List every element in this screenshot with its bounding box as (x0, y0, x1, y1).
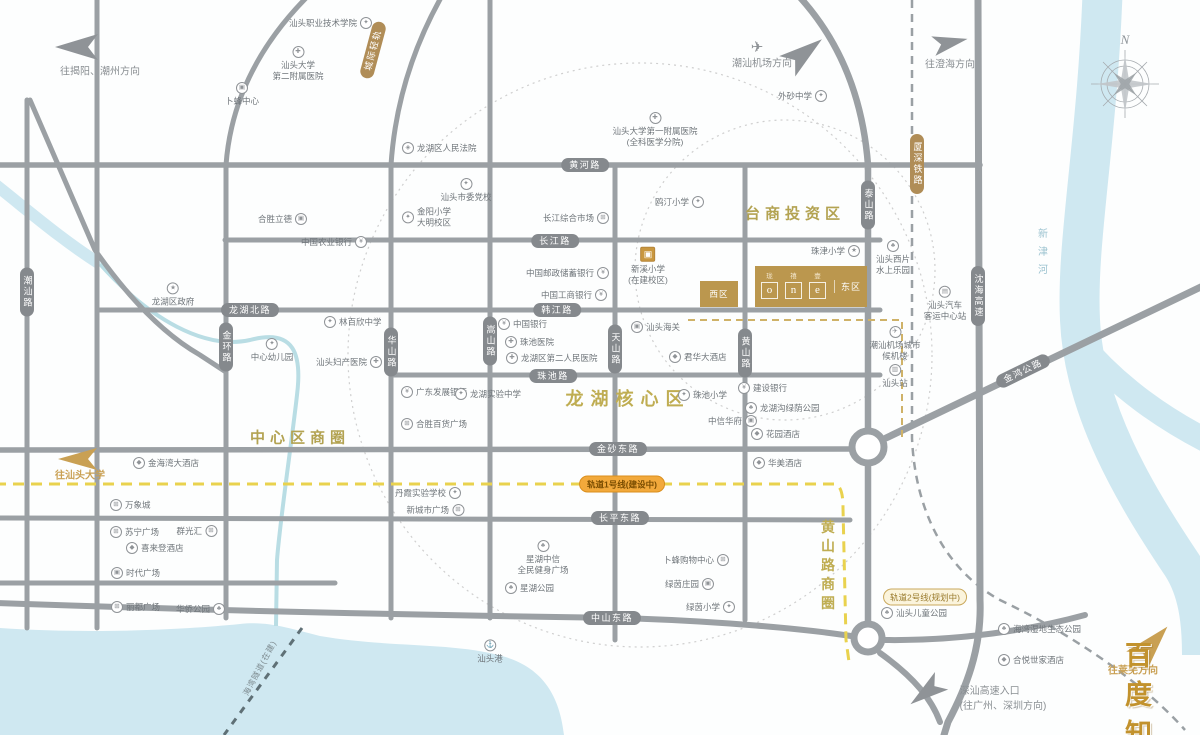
poi-building: ▣合胜立德 (258, 213, 307, 225)
poi-park: ♣华侨公园 (176, 603, 225, 615)
poi-label: 合胜立德 (258, 214, 292, 225)
poi-bus: ▤汕头汽车 客运中心站 (924, 286, 967, 321)
area-label-longhu-core: 龙湖核心区 (566, 385, 691, 411)
arrow-jieyang-icon (55, 34, 98, 60)
location-map: 西区 珑o禧n壹e东区 黄河路长江路龙湖北路韩江路珠池路金砂东路长平东路中山东路… (0, 0, 1200, 735)
compass-north-label: N (1121, 32, 1130, 48)
project-east-label: 东区 (834, 280, 861, 293)
project-brand-char: 珑 (766, 274, 773, 281)
building-icon: ▣ (295, 213, 307, 225)
plane-icon: ✈ (889, 326, 901, 338)
hotel-icon: ◆ (126, 542, 138, 554)
direction-airport: 潮汕机场方向 (732, 55, 792, 70)
poi-park: ♣海湾湿地生态公园 (998, 623, 1081, 635)
road-label-jinhuan: 金环路 (219, 323, 233, 372)
poi-train: ▥汕头站 (882, 364, 908, 389)
school-icon: ✦ (449, 487, 461, 499)
road-label-changjiang: 长江路 (531, 234, 579, 248)
poi-label: 花园酒店 (766, 429, 800, 440)
poi-hospital: ✚汕头大学第一附属医院 (全科医学分院) (612, 112, 697, 147)
rail-label-xiashen: 厦深铁路 (910, 134, 924, 194)
poi-label: 合悦世家酒店 (1013, 655, 1064, 666)
poi-label: 合胜百货广场 (416, 419, 467, 430)
poi-star: ★龙湖区政府 (152, 282, 195, 307)
star-icon: ★ (848, 245, 860, 257)
poi-building: ▣绿茵庄园 (665, 578, 714, 590)
road-label-chaoshan: 潮汕路 (20, 268, 34, 317)
poi-school: ✦中心幼儿园 (251, 338, 294, 363)
poi-label: 汕头西片 水上乐园 (876, 254, 910, 275)
road-label-huangshan: 黄山路 (738, 329, 752, 378)
poi-label: 中心幼儿园 (251, 352, 294, 363)
poi-bank: ¥建设银行 (738, 382, 787, 394)
poi-market: ⊞万象城 (110, 499, 151, 511)
poi-school: ✦汕头职业技术学院 (289, 17, 372, 29)
poi-label: 林百欣中学 (339, 317, 382, 328)
bank-icon: ¥ (498, 318, 510, 330)
poi-label: 潮汕机场城市 候机楼 (869, 340, 920, 361)
poi-label: 万象城 (125, 500, 151, 511)
poi-market: ⊞长江综合市场 (543, 212, 609, 224)
hospital-icon: ✚ (292, 46, 304, 58)
school-icon: ✦ (402, 211, 414, 223)
poi-label: 星湖公园 (520, 583, 554, 594)
poi-label: 外砂中学 (778, 91, 812, 102)
star-icon: ★ (167, 282, 179, 294)
poi-building: ▣卜蜂中心 (225, 82, 259, 107)
poi-bank: ¥中国工商银行 (541, 289, 607, 301)
poi-label: 汕头市委党校 (440, 192, 491, 203)
poi-label: 群光汇 (176, 526, 202, 537)
poi-label: 金阳小学 大明校区 (417, 206, 451, 227)
poi-label: 中国银行 (513, 319, 547, 330)
poi-label: 华侨公园 (176, 604, 210, 615)
poi-bank: ¥中国农业银行 (301, 236, 367, 248)
bank-icon: ¥ (738, 382, 750, 394)
poi-label: 建设银行 (753, 383, 787, 394)
hospital-icon: ✚ (506, 352, 518, 364)
poi-market: ⊞合胜百货广场 (401, 418, 467, 430)
project-brand-cell: 壹e (809, 274, 826, 299)
poi-label: 君华大酒店 (684, 352, 727, 363)
road-label-longhubei: 龙湖北路 (221, 303, 279, 317)
poi-school: ✦龙湖实验中学 (455, 388, 521, 400)
area-label-center-cbd: 中心区商圈 (250, 427, 350, 448)
poi-school: ✦外砂中学 (778, 90, 827, 102)
building-icon: ▣ (631, 321, 643, 333)
train-icon: ▥ (889, 364, 901, 376)
park-icon: ♣ (881, 607, 893, 619)
area-label-huangshan-cbd: 黄山路商圈 (818, 520, 838, 615)
poi-park: ♣星湖公园 (505, 582, 554, 594)
poi-label: 汕头海关 (646, 322, 680, 333)
school-icon: ✦ (266, 338, 278, 350)
hotel-icon: ◆ (751, 428, 763, 440)
project-brand-letter: e (809, 282, 826, 299)
poi-park: ♣龙湖沟绿荫公园 (745, 402, 820, 414)
project-brand-char: 禧 (790, 274, 797, 281)
poi-label: 中国邮政储蓄银行 (526, 268, 594, 279)
poi-label: 喜来登酒店 (141, 543, 184, 554)
poi-school: ✦丹霞实验学校 (395, 487, 461, 499)
poi-star: ★珠津小学 (811, 245, 860, 257)
poi-bank: ¥中国邮政储蓄银行 (526, 267, 609, 279)
project-west-label: 西区 (709, 288, 728, 300)
poi-label: 长江综合市场 (543, 213, 594, 224)
poi-market: ⊞群光汇 (176, 525, 217, 537)
poi-label: 汕头职业技术学院 (289, 18, 357, 29)
poi-school: ✦金阳小学 大明校区 (402, 206, 451, 227)
poi-park: ♣星湖中信 全民健身广场 (517, 540, 568, 575)
building-icon: ▣ (111, 567, 123, 579)
poi-hotel: ◆喜来登酒店 (126, 542, 184, 554)
school-icon: ✦ (723, 601, 735, 613)
hotel-icon: ◆ (133, 457, 145, 469)
poi-label: 汕头港 (477, 653, 503, 664)
poi-label: 龙湖区第二人民医院 (521, 353, 598, 364)
road-label-hanjiang: 韩江路 (533, 303, 581, 317)
airplane-icon: ✈ (751, 38, 764, 56)
poi-label: 龙湖区政府 (152, 296, 195, 307)
market-icon: ⊞ (597, 212, 609, 224)
park-icon: ♣ (537, 540, 549, 552)
poi-label: 鸥汀小学 (655, 197, 689, 208)
poi-label: 华美酒店 (768, 458, 802, 469)
market-icon: ⊞ (401, 418, 413, 430)
project-brand-letter: o (761, 282, 778, 299)
park-icon: ♣ (505, 582, 517, 594)
poi-label: 海湾湿地生态公园 (1013, 624, 1081, 635)
direction-shenshan-entrance: 深汕高速入口 (往广州、深圳方向) (960, 682, 1047, 712)
gold-school-icon: ▣ (640, 247, 655, 262)
project-main-block: 珑o禧n壹e东区 (755, 266, 867, 307)
school-icon: ✦ (360, 17, 372, 29)
poi-label: 汕头站 (882, 378, 908, 389)
poi-building: ▣时代广场 (111, 567, 160, 579)
road-label-jinshadong: 金砂东路 (589, 442, 647, 456)
hotel-icon: ◆ (998, 654, 1010, 666)
poi-label: 卜蜂购物中心 (663, 555, 714, 566)
market-icon: ⊞ (110, 526, 122, 538)
poi-label: 汕头妇产医院 (316, 357, 367, 368)
poi-label: 珠池医院 (520, 337, 554, 348)
poi-label: 汕头大学 第二附属医院 (272, 60, 323, 81)
road-label-songshan: 嵩山路 (483, 317, 497, 366)
bus-icon: ▤ (939, 286, 951, 298)
road-label-tianshan: 天山路 (608, 325, 622, 374)
poi-court: ◈龙湖区人民法院 (402, 142, 477, 154)
bank-icon: ¥ (597, 267, 609, 279)
poi-school: ✦鸥汀小学 (655, 196, 704, 208)
bank-icon: ¥ (401, 386, 413, 398)
poi-label: 汕头儿童公园 (896, 608, 947, 619)
poi-label: 时代广场 (126, 568, 160, 579)
poi-label: 丹霞实验学校 (395, 488, 446, 499)
school-icon: ✦ (455, 388, 467, 400)
hotel-icon: ◆ (669, 351, 681, 363)
hospital-icon: ✚ (649, 112, 661, 124)
poi-anchor: ⚓汕头港 (477, 639, 503, 664)
poi-label: 中信华府 (708, 416, 742, 427)
poi-label: 汕头大学第一附属医院 (全科医学分院) (612, 126, 697, 147)
park-icon: ♣ (998, 623, 1010, 635)
poi-label: 卜蜂中心 (225, 96, 259, 107)
direction-chenghai: 往澄海方向 (925, 56, 975, 71)
project-brand-letter: n (785, 282, 802, 299)
poi-market: ⊞新城市广场 (406, 504, 464, 516)
poi-park: ♣汕头西片 水上乐园 (876, 240, 910, 275)
poi-hotel: ◆合悦世家酒店 (998, 654, 1064, 666)
school-icon: ✦ (460, 178, 472, 190)
anchor-icon: ⚓ (484, 639, 496, 651)
school-icon: ✦ (692, 196, 704, 208)
road-label-huanghe: 黄河路 (561, 158, 609, 172)
poi-park: ♣汕头儿童公园 (881, 607, 947, 619)
poi-market: ⊞卜蜂购物中心 (663, 554, 729, 566)
poi-label: 龙湖沟绿荫公园 (760, 403, 820, 414)
poi-label: 汕头汽车 客运中心站 (924, 300, 967, 321)
project-west-block: 西区 (700, 281, 738, 307)
park-icon: ♣ (213, 603, 225, 615)
poi-label: 金海湾大酒店 (148, 458, 199, 469)
metro-line1-badge: 轨道1号线(建设中) (579, 476, 665, 493)
bank-icon: ¥ (355, 236, 367, 248)
building-icon: ▣ (236, 82, 248, 94)
market-icon: ⊞ (205, 525, 217, 537)
river-label-xinjin: 新津河 (1034, 228, 1049, 282)
project-brand-char: 壹 (814, 274, 821, 281)
park-icon: ♣ (745, 402, 757, 414)
school-icon: ✦ (324, 316, 336, 328)
poi-hospital: ✚汕头大学 第二附属医院 (272, 46, 323, 81)
poi-hotel: ◆华美酒店 (753, 457, 802, 469)
poi-label: 苏宁广场 (125, 527, 159, 538)
area-label-taishang: 台商投资区 (745, 203, 845, 224)
poi-label: 新城市广场 (406, 505, 449, 516)
road-label-changpingdong: 长平东路 (591, 511, 649, 525)
poi-label: 龙湖实验中学 (470, 389, 521, 400)
road-label-taishan: 泰山路 (861, 181, 875, 230)
poi-label: 珠津小学 (811, 246, 845, 257)
poi-school: ✦珠池小学 (678, 389, 727, 401)
market-icon: ⊞ (110, 499, 122, 511)
market-icon: ⊞ (111, 601, 123, 613)
poi-hospital: ✚汕头妇产医院 (316, 356, 382, 368)
poi-school: ✦林百欣中学 (324, 316, 382, 328)
poi-label: 珠池小学 (693, 390, 727, 401)
poi-hospital: ✚龙湖区第二人民医院 (506, 352, 598, 364)
arrow-chenghai-icon (931, 29, 969, 56)
road-label-huashan: 华山路 (384, 328, 398, 377)
direction-jieyang-chaozhou: 往揭阳、潮州方向 (60, 63, 140, 78)
project-brand-cell: 禧n (785, 274, 802, 299)
hospital-icon: ✚ (505, 336, 517, 348)
poi-hotel: ◆花园酒店 (751, 428, 800, 440)
park-icon: ♣ (887, 240, 899, 252)
watermark-baidu-zhidao: 百度知道 (1125, 634, 1175, 735)
hospital-icon: ✚ (370, 356, 382, 368)
poi-building: ▣汕头海关 (631, 321, 680, 333)
poi-label: 绿茵小学 (686, 602, 720, 613)
poi-bank: ¥中国银行 (498, 318, 547, 330)
road-label-zhongshandong: 中山东路 (583, 611, 641, 625)
poi-market: ⊞苏宁广场 (110, 526, 159, 538)
project-brand-cell: 珑o (761, 274, 778, 299)
poi-building: ▣中信华府 (708, 415, 757, 427)
metro-line2-badge: 轨道2号线(规划中) (883, 589, 967, 606)
building-icon: ▣ (702, 578, 714, 590)
poi-hospital: ✚珠池医院 (505, 336, 554, 348)
market-icon: ⊞ (452, 504, 464, 516)
court-icon: ◈ (402, 142, 414, 154)
market-icon: ⊞ (717, 554, 729, 566)
poi-label: 绿茵庄园 (665, 579, 699, 590)
poi-school: ✦汕头市委党校 (440, 178, 491, 203)
building-icon: ▣ (745, 415, 757, 427)
poi-label: 丽都广场 (126, 602, 160, 613)
poi-gold-school: ▣新溪小学 (在建校区) (628, 247, 668, 285)
poi-plane: ✈潮汕机场城市 候机楼 (869, 326, 920, 361)
poi-hotel: ◆金海湾大酒店 (133, 457, 199, 469)
poi-label: 龙湖区人民法院 (417, 143, 477, 154)
road-label-shenhai-expressway: 沈海高速 (971, 266, 985, 326)
poi-label: 中国工商银行 (541, 290, 592, 301)
school-icon: ✦ (678, 389, 690, 401)
poi-hotel: ◆君华大酒店 (669, 351, 727, 363)
poi-label: 星湖中信 全民健身广场 (517, 554, 568, 575)
poi-label: 新溪小学 (在建校区) (628, 264, 668, 285)
road-label-zhuchi: 珠池路 (529, 369, 577, 383)
direction-shantou-university: 往汕头大学 (55, 467, 105, 482)
poi-school: ✦绿茵小学 (686, 601, 735, 613)
poi-label: 中国农业银行 (301, 237, 352, 248)
bank-icon: ¥ (595, 289, 607, 301)
school-icon: ✦ (815, 90, 827, 102)
hotel-icon: ◆ (753, 457, 765, 469)
poi-market: ⊞丽都广场 (111, 601, 160, 613)
